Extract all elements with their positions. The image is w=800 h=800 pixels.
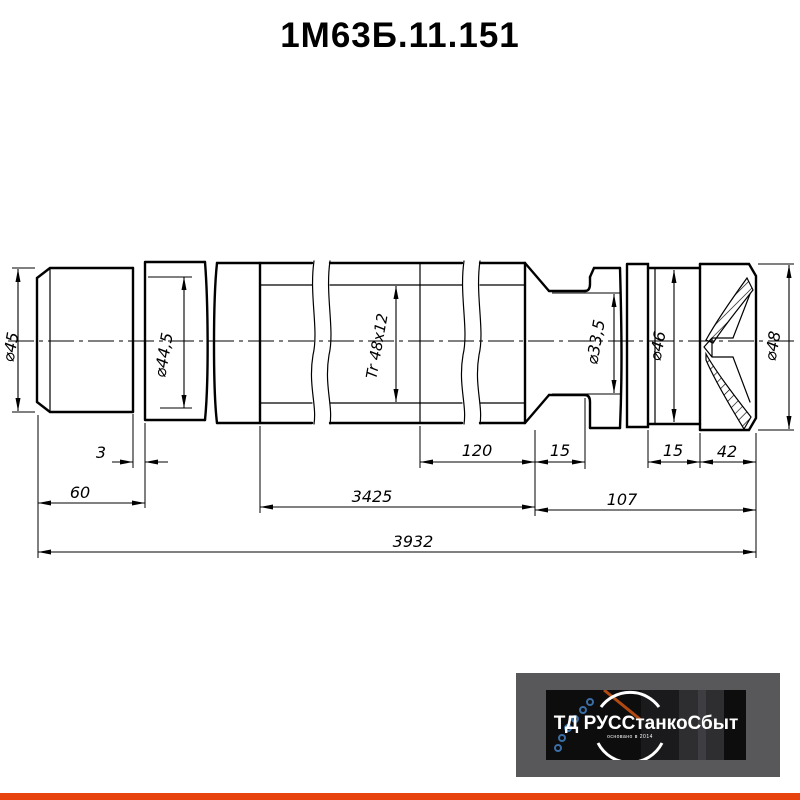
dim-label-3: 3	[96, 443, 106, 462]
dim-label-d48: ⌀48	[761, 330, 785, 363]
dim-label-60: 60	[70, 483, 90, 502]
dim-label-d33-5: ⌀33,5	[582, 318, 609, 366]
dim-label-d46: ⌀46	[646, 330, 670, 363]
dim-label-42: 42	[717, 442, 737, 461]
logo-brand-text: ТД РУССтанкоСбыт	[546, 713, 746, 735]
logo-subtext: основано в 2014	[580, 734, 680, 740]
dim-label-107: 107	[607, 490, 638, 509]
center-hole-upper-hatch	[706, 278, 753, 343]
dim-label-3425: 3425	[352, 487, 393, 506]
dim-label-thread: Tr 48x12	[362, 312, 391, 380]
center-hole-lower-hatch	[706, 354, 751, 429]
dim-label-d45: ⌀45	[0, 331, 23, 364]
vendor-logo-block: ТД РУССтанкоСбыт основано в 2014	[516, 673, 780, 777]
logo-photo: ТД РУССтанкоСбыт основано в 2014	[546, 690, 746, 760]
dim-label-3932: 3932	[393, 532, 434, 551]
dim-label-15a: 15	[550, 441, 570, 460]
dim-label-d44-5: ⌀44,5	[150, 331, 177, 379]
dim-label-15b: 15	[663, 441, 683, 460]
dim-label-120: 120	[462, 441, 493, 460]
bottom-accent-bar	[0, 793, 800, 800]
shaft-drawing: ⌀45 ⌀44,5 Tr 48x12 ⌀33,5 ⌀46 ⌀48 3 60 12…	[0, 0, 800, 660]
